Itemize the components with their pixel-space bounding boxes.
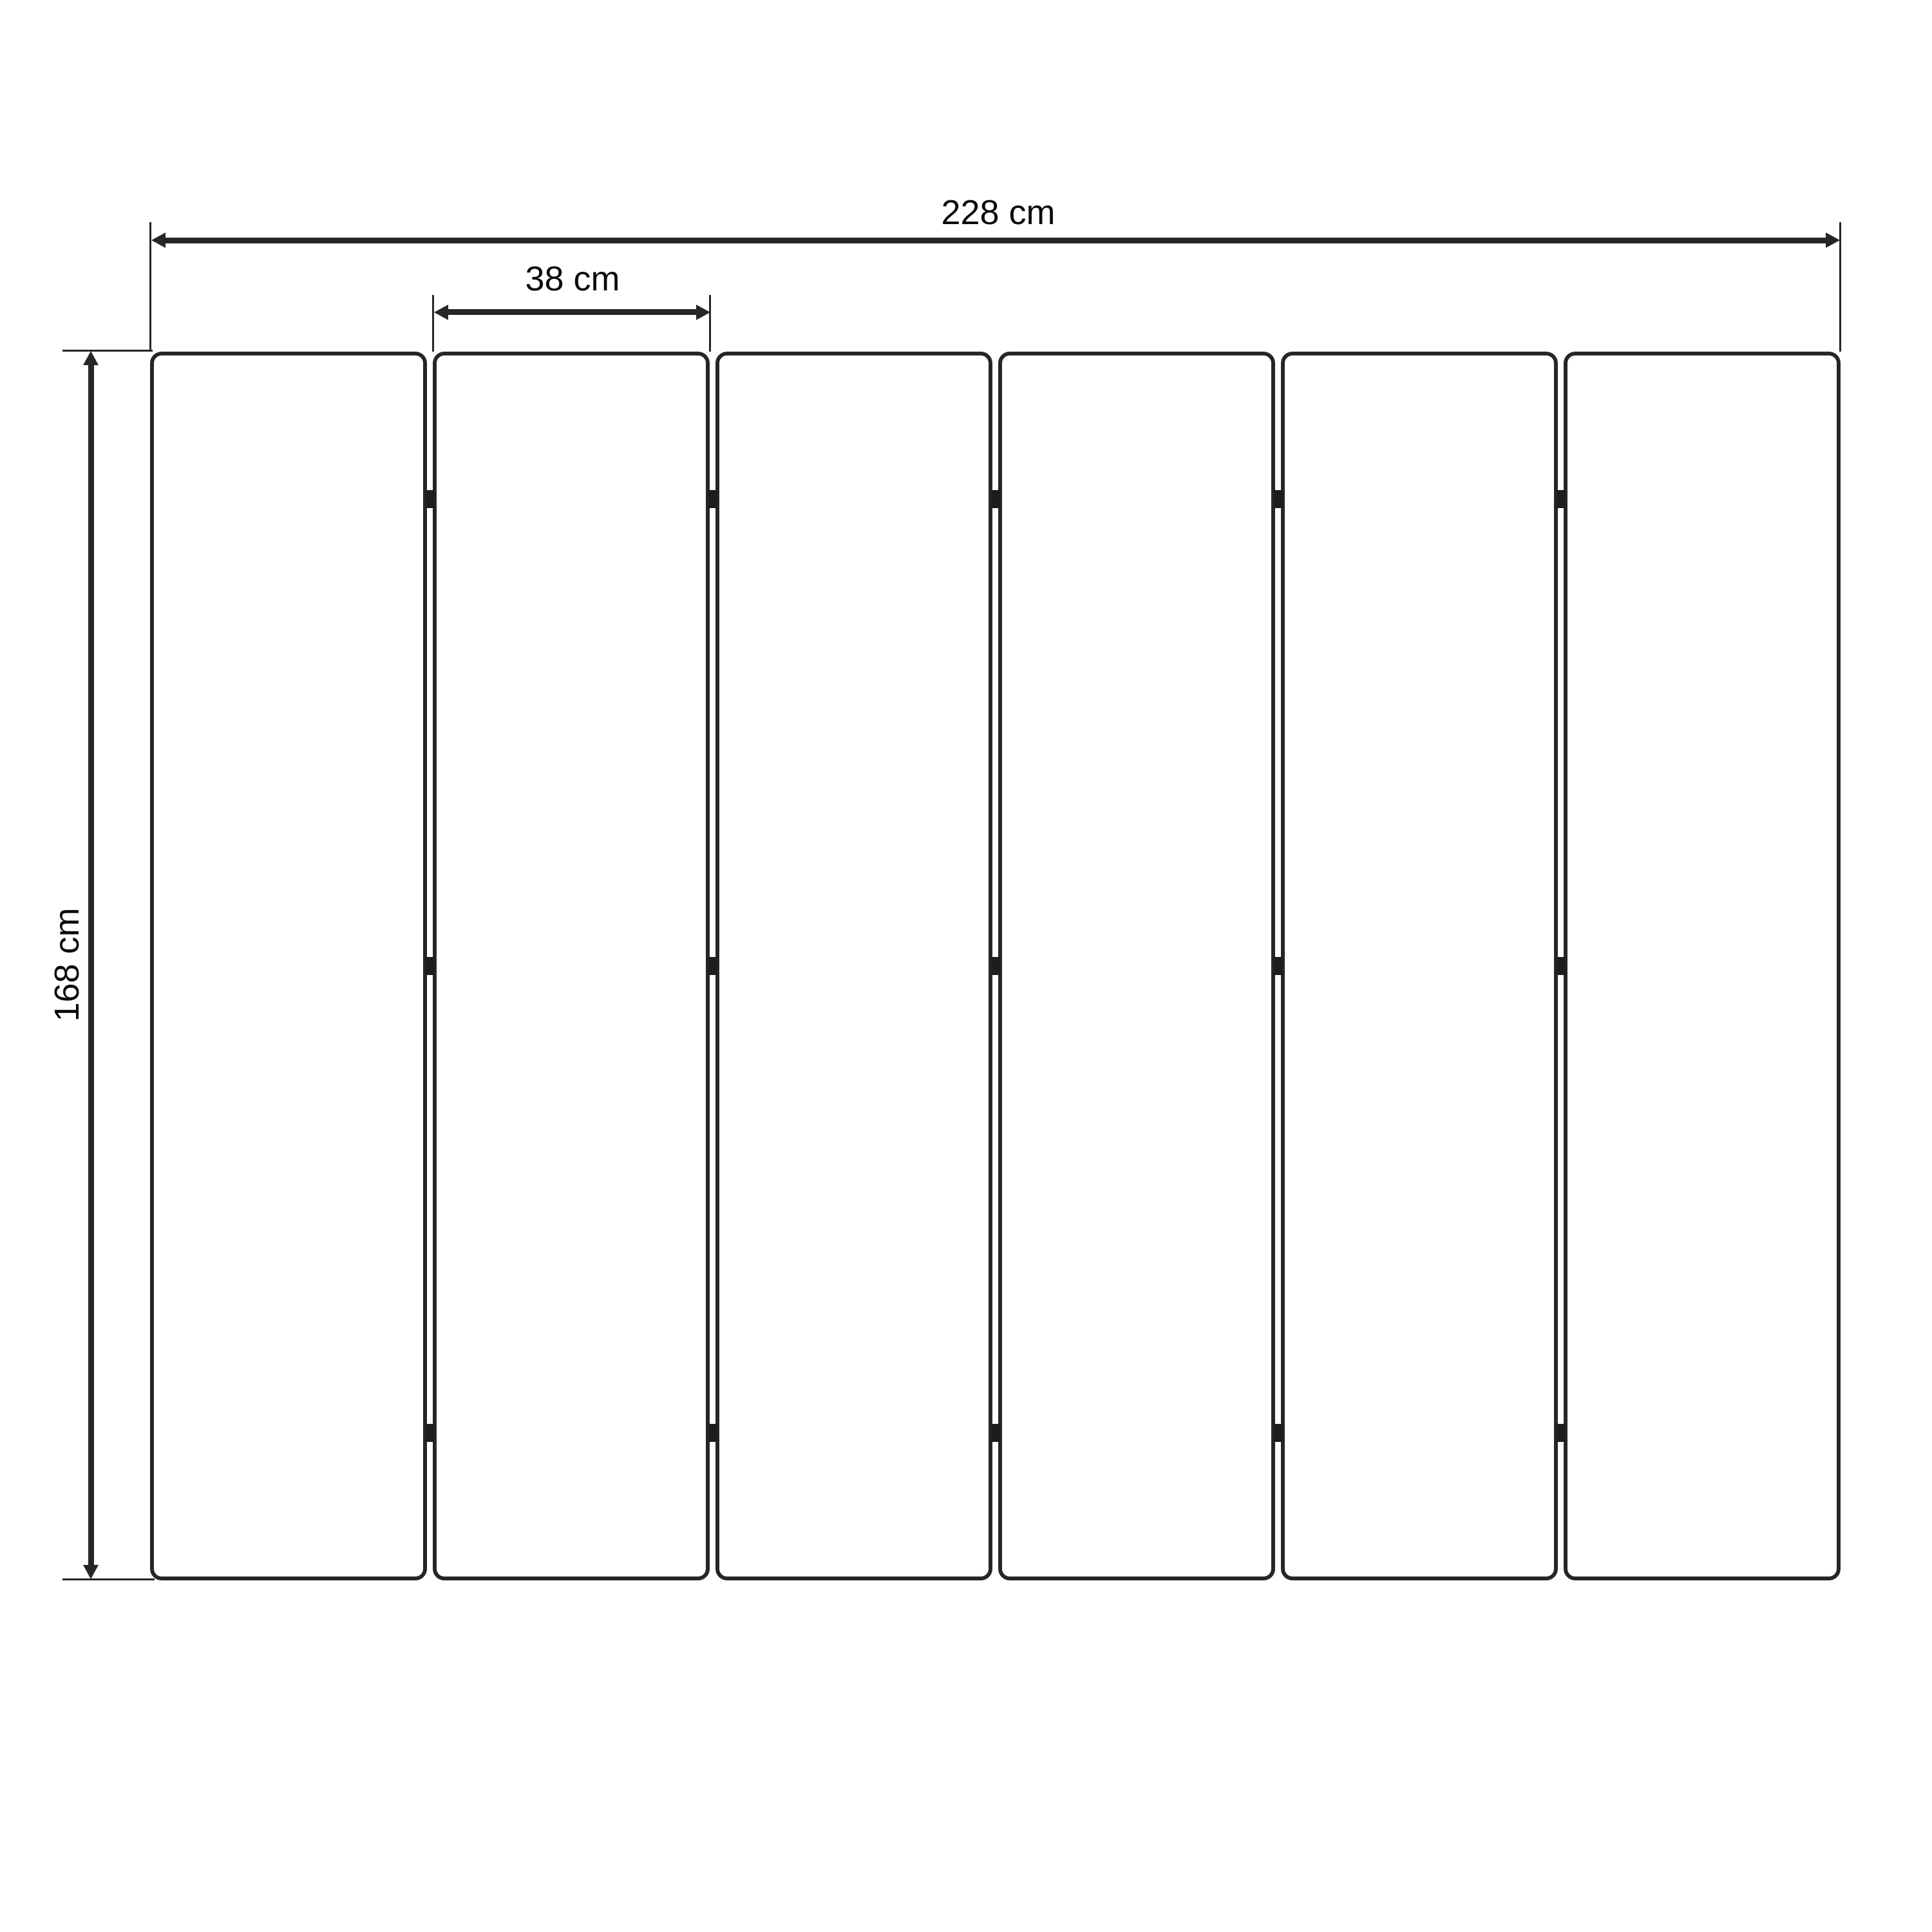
hinge [1557, 490, 1566, 508]
panel-5 [1281, 352, 1558, 1580]
hinge [991, 490, 1000, 508]
arrowhead-down-icon [83, 1565, 99, 1579]
extension-line-bottom [62, 1578, 155, 1580]
hinge [1274, 490, 1283, 508]
arrowhead-right-icon [1826, 232, 1840, 248]
hinge [708, 490, 717, 508]
hinge [426, 957, 435, 975]
panel-width-label: 38 cm [525, 261, 620, 296]
hinge [1274, 957, 1283, 975]
extension-line-top [62, 350, 153, 352]
panel-3 [715, 352, 992, 1580]
dimension-line [88, 365, 94, 1566]
total-width-label: 228 cm [941, 195, 1055, 230]
hinge [426, 1424, 435, 1442]
hinge [1274, 1424, 1283, 1442]
hinge [1557, 957, 1566, 975]
hinge [991, 957, 1000, 975]
panel-2 [433, 352, 710, 1580]
hinge [991, 1424, 1000, 1442]
panel-4 [998, 352, 1275, 1580]
arrowhead-right-icon [696, 305, 710, 320]
arrowhead-up-icon [83, 351, 99, 365]
diagram-canvas: 228 cm 38 cm 168 cm [0, 0, 1932, 1932]
panel-6 [1564, 352, 1841, 1580]
arrowhead-left-icon [151, 232, 166, 248]
panel-1 [150, 352, 427, 1580]
hinge [708, 1424, 717, 1442]
extension-line-right [709, 295, 711, 352]
dimension-line [447, 309, 698, 315]
hinge [708, 957, 717, 975]
height-label: 168 cm [50, 907, 84, 1021]
dimension-line [164, 238, 1828, 243]
arrowhead-left-icon [434, 305, 448, 320]
hinge [1557, 1424, 1566, 1442]
extension-line-left [432, 295, 434, 352]
hinge [426, 490, 435, 508]
